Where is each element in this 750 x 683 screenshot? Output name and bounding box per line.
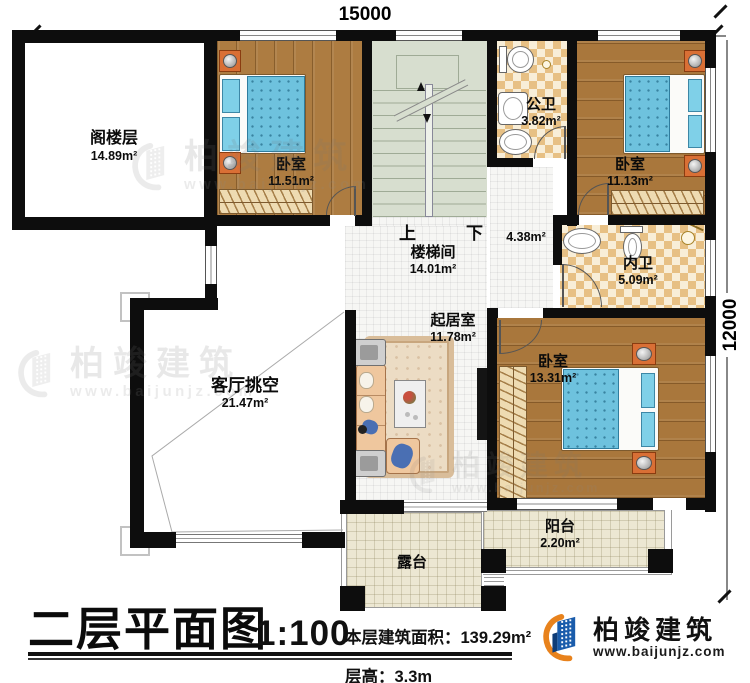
terrace-post (481, 549, 506, 573)
terrace-post (340, 586, 365, 611)
room-label-family-room: 起居室 11.78m² (430, 312, 476, 344)
wall (217, 215, 330, 226)
nightstand (632, 452, 656, 474)
window (240, 30, 336, 41)
stair-arrow-icon (423, 114, 431, 123)
wall (340, 500, 404, 514)
room-label-terrace: 露台 (397, 554, 427, 572)
decor-dot (358, 425, 367, 434)
mattress (625, 76, 670, 152)
wall (487, 158, 533, 167)
armchair (352, 339, 386, 366)
drawing-scale: 1:100 (256, 616, 351, 651)
wall (130, 298, 144, 548)
sofa-cushion (359, 372, 374, 389)
title-underline (28, 652, 512, 656)
wardrobe (611, 190, 704, 215)
stairs-down-label: 下 (466, 219, 483, 244)
stairs-up-label: 上 (399, 219, 416, 244)
brand-website: www.baijunjz.com (593, 644, 726, 660)
door-leaf (564, 126, 566, 159)
room-label-bedroom-south: 卧室 13.31m² (530, 353, 577, 385)
room-label-public-bath: 公卫 3.82m² (521, 96, 561, 128)
wall (302, 532, 345, 548)
pillow (688, 115, 702, 148)
void-opening-lines (144, 310, 346, 534)
wall (487, 308, 497, 510)
floor-plan: 15000 12000 (0, 0, 750, 683)
wardrobe (219, 189, 313, 214)
wall (567, 41, 577, 226)
window (705, 356, 716, 452)
tv (477, 368, 487, 440)
wall (205, 226, 217, 246)
wall (608, 215, 716, 225)
pillow (222, 79, 240, 113)
room-label-inner-bath: 内卫 5.09m² (618, 255, 658, 287)
nightstand (632, 343, 656, 365)
balcony-post (648, 549, 673, 573)
shower-icon (681, 231, 695, 245)
pillow (641, 412, 655, 447)
wall (487, 498, 517, 510)
window (705, 68, 716, 152)
coffee-table (394, 380, 426, 428)
nightstand (219, 152, 241, 174)
brand-name: 柏竣建筑 (593, 616, 726, 645)
floor-area-text: 本层建筑面积：139.29m² (345, 624, 531, 648)
flower-decor (403, 391, 416, 404)
terrace-post (481, 586, 506, 611)
sink-icon (499, 129, 532, 155)
mattress (247, 76, 305, 152)
stair-arrow-icon (417, 82, 425, 91)
window (176, 534, 302, 543)
brand-logo-icon (540, 612, 586, 664)
step-line (484, 577, 504, 578)
sink-icon (563, 228, 601, 254)
wall (355, 215, 372, 226)
window (396, 30, 462, 41)
dimension-top-value: 15000 (330, 4, 400, 26)
cup (413, 415, 418, 420)
room-label-stair-hall: 楼梯间 14.01m² (410, 244, 457, 276)
wall (617, 498, 653, 510)
window (517, 498, 617, 510)
pillow (641, 373, 655, 408)
dimension-tick-icon (717, 589, 731, 603)
dimension-tick-icon (713, 4, 727, 18)
pillow (222, 117, 240, 151)
room-label-balcony: 阳台 2.20m² (540, 518, 580, 550)
floor-drain-icon (542, 60, 551, 69)
wardrobe (499, 366, 527, 506)
window (598, 30, 680, 41)
room-label-attic: 阁楼层 14.89m² (90, 130, 138, 164)
armchair (352, 450, 386, 477)
floor-height-text: 层高：3.3m (345, 663, 432, 683)
toilet-icon (507, 46, 534, 73)
nightstand (684, 155, 706, 177)
toilet-tank (620, 226, 643, 233)
door-leaf (499, 320, 501, 354)
room-label-bedroom-left: 卧室 11.51m² (268, 156, 314, 188)
door-leaf (354, 186, 356, 216)
nightstand (219, 50, 241, 72)
nightstand (684, 50, 706, 72)
wall (543, 308, 716, 318)
wall (362, 41, 372, 215)
dimension-right-value: 12000 (720, 293, 742, 357)
step-line (484, 581, 504, 582)
hall-area-label: 4.38m² (506, 230, 546, 245)
window (705, 240, 716, 296)
room-label-living-void: 客厅挑空 21.47m² (211, 376, 279, 411)
brand-logo: 柏竣建筑 www.baijunjz.com (540, 612, 726, 664)
wall (686, 498, 716, 510)
wall (553, 215, 562, 265)
wall (487, 41, 497, 167)
railing-line (483, 570, 672, 571)
room-label-bedroom-right: 卧室 11.13m² (607, 156, 653, 188)
window (205, 246, 217, 284)
sofa-cushion (359, 396, 374, 413)
door-leaf (562, 264, 564, 307)
wall (345, 310, 356, 502)
window (404, 502, 487, 512)
railing-line (483, 574, 672, 575)
title-underline-thin (28, 658, 512, 660)
toilet-tank (499, 46, 507, 73)
wall (130, 532, 176, 548)
watermark-logo-icon (16, 345, 60, 403)
cup (405, 412, 410, 417)
page-title: 二层平面图 (28, 606, 268, 652)
pillow (688, 79, 702, 112)
